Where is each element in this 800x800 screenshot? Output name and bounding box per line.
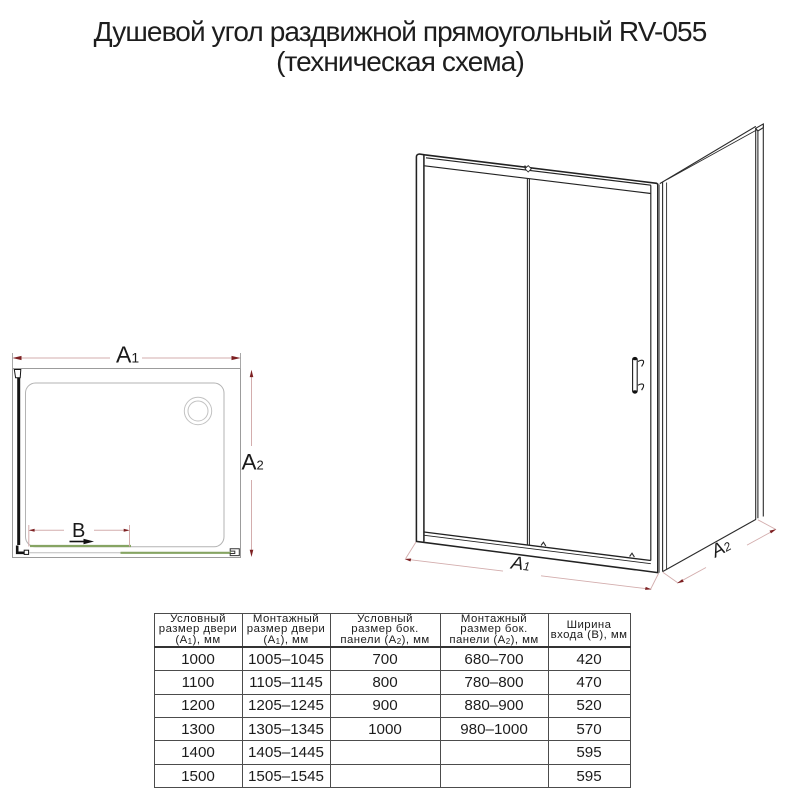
svg-text:A2: A2 xyxy=(707,534,735,562)
svg-text:A2: A2 xyxy=(242,450,264,475)
svg-text:A1: A1 xyxy=(116,342,139,368)
svg-text:A1: A1 xyxy=(509,552,531,575)
svg-text:B: B xyxy=(72,520,85,542)
